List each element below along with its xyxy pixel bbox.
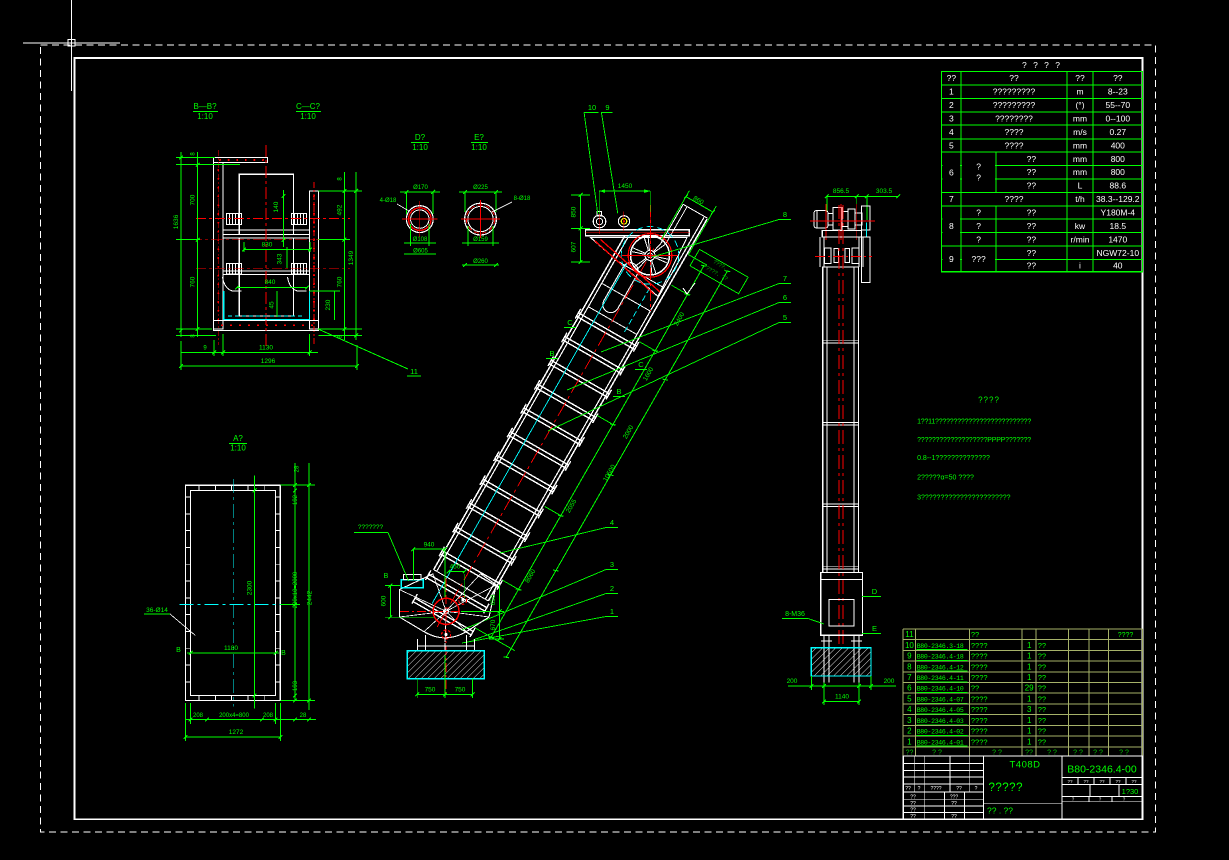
svg-text:10: 10 [905,641,914,650]
svg-text:Ø225: Ø225 [473,185,488,191]
svg-text:??: ?? [1027,261,1037,271]
svg-text:492: 492 [337,204,344,215]
svg-text:? ?: ? ? [1093,750,1103,757]
svg-text:2?????α=50 ????: 2?????α=50 ???? [917,475,974,482]
svg-text:45: 45 [269,301,276,309]
svg-text:6: 6 [949,167,954,177]
svg-text:(°): (°) [1075,100,1084,110]
svg-text:mm: mm [1073,114,1087,124]
svg-text:B: B [616,387,621,396]
svg-text:40: 40 [1113,261,1123,271]
svg-text:36-Ø14: 36-Ø14 [146,607,168,614]
svg-text:1: 1 [949,87,954,97]
svg-text:1:10: 1:10 [471,143,487,152]
svg-text:607: 607 [571,241,578,252]
svg-text:???: ??? [950,795,959,801]
svg-text:0.8--1??????????????: 0.8--1?????????????? [917,455,990,462]
svg-text:t/h: t/h [1075,194,1085,204]
svg-text:3: 3 [1027,705,1032,714]
svg-text:11: 11 [410,367,418,376]
svg-text:??: ?? [1038,705,1046,714]
svg-text:4: 4 [949,127,954,137]
svg-text:1349: 1349 [348,250,355,265]
svg-text:????: ???? [978,396,1000,405]
svg-text:850: 850 [571,206,578,217]
svg-text:??: ?? [1038,641,1046,650]
svg-text:C—C?: C—C? [296,102,321,111]
svg-text:4-Ø18: 4-Ø18 [380,198,397,204]
svg-text:38.3--129.2: 38.3--129.2 [1096,194,1140,204]
svg-text:????: ???? [1005,140,1024,150]
svg-text:?: ? [976,161,981,171]
svg-text:????????: ???????? [995,114,1033,124]
svg-text:28: 28 [295,465,301,472]
svg-text:L: L [1078,181,1083,191]
svg-text:??: ?? [1027,154,1037,164]
svg-text:???????????????????PPPP???????: ???????????????????PPPP??????? [917,437,1031,444]
svg-text:?????????: ????????? [993,87,1036,97]
svg-text:E: E [872,624,877,633]
svg-text:?????????: ????????? [993,100,1036,110]
svg-text:5: 5 [783,313,787,322]
svg-text:7: 7 [907,673,912,682]
svg-text:??: ?? [1027,221,1037,231]
svg-text:????: ???? [971,716,988,725]
svg-text:??: ?? [1038,716,1046,725]
svg-text:28: 28 [300,713,307,719]
svg-text:193: 193 [293,680,299,691]
svg-text:?????: ????? [989,782,1023,794]
svg-text:B—B?: B—B? [193,102,217,111]
svg-text:800: 800 [1111,154,1125,164]
svg-text:B80-2346.4-01: B80-2346.4-01 [917,739,964,746]
svg-text:?: ? [976,234,981,244]
svg-text:B80-2346.4-11: B80-2346.4-11 [917,675,964,682]
svg-text:D: D [872,587,878,596]
svg-text:3: 3 [610,560,614,569]
svg-text:6: 6 [783,293,787,302]
svg-text:????: ???? [1005,127,1024,137]
svg-text:?: ? [918,786,921,792]
svg-text:??: ?? [1027,167,1037,177]
svg-text:B: B [176,647,181,654]
svg-text:B: B [549,349,554,358]
svg-text:??: ?? [1009,73,1019,83]
svg-text:??: ?? [1027,207,1037,217]
svg-text:8: 8 [949,221,954,231]
svg-text:800: 800 [1111,167,1125,177]
svg-text:?: ? [976,207,981,217]
svg-text:5: 5 [949,140,954,150]
svg-text:??: ?? [971,684,979,693]
svg-text:E?: E? [474,133,484,142]
svg-text:1:10: 1:10 [412,143,428,152]
svg-text:2300: 2300 [247,580,254,595]
svg-text:1: 1 [1027,652,1032,661]
svg-text:1: 1 [1027,641,1032,650]
svg-text:1:10: 1:10 [300,112,316,121]
svg-text:1450: 1450 [618,183,633,190]
svg-text:Y180M-4: Y180M-4 [1101,207,1136,217]
svg-text:8: 8 [907,662,912,671]
svg-text:1: 1 [1027,716,1032,725]
svg-text:????: ???? [1005,194,1024,204]
svg-text:1470: 1470 [1108,234,1127,244]
svg-text:2: 2 [949,100,954,110]
svg-text:??: ?? [1115,779,1121,784]
svg-text:??: ?? [910,808,916,814]
svg-text:??: ?? [1038,652,1046,661]
svg-text:1?30: 1?30 [1122,787,1139,796]
svg-text:7: 7 [949,194,954,204]
svg-text:????: ???? [971,673,988,682]
svg-text:? ?: ? ? [992,750,1002,757]
svg-text:1130: 1130 [259,345,273,352]
svg-text:??: ?? [947,73,957,83]
svg-text:1272: 1272 [229,729,244,736]
svg-text:55--70: 55--70 [1106,100,1131,110]
svg-text:670: 670 [490,619,497,630]
svg-text:200: 200 [884,678,895,685]
svg-text:??: ?? [906,750,914,757]
svg-text:29: 29 [1025,684,1034,693]
svg-text:????: ???? [1118,632,1134,639]
svg-text:? ?: ? ? [1073,750,1083,757]
svg-text:Ø260: Ø260 [473,259,488,265]
svg-text:3???????????????????????: 3??????????????????????? [917,494,1011,501]
svg-text:C: C [567,318,573,327]
svg-text:10: 10 [588,103,596,112]
svg-text:??: ?? [1038,727,1046,736]
svg-text:8-M36: 8-M36 [785,611,805,618]
svg-text:NGW72-10: NGW72-10 [1097,248,1140,258]
svg-text:750: 750 [425,687,436,694]
svg-text:??: ?? [1075,73,1085,83]
svg-text:? ? ? ?: ? ? ? ? [1022,60,1062,70]
svg-text:mm: mm [1073,154,1087,164]
svg-text:i: i [1079,261,1081,271]
svg-text:1296: 1296 [261,358,276,365]
svg-text:200: 200 [787,678,798,685]
svg-text:??: ?? [905,786,911,792]
svg-text:????: ???? [930,786,941,792]
svg-text:230: 230 [325,299,332,310]
svg-text:B80-2346.4-07: B80-2346.4-07 [917,696,964,703]
svg-text:??: ?? [1067,779,1073,784]
svg-text:1: 1 [1027,673,1032,682]
svg-text:B80-2346.4-02: B80-2346.4-02 [917,729,964,736]
svg-text:4: 4 [610,518,614,527]
svg-text:Ø159: Ø159 [473,237,488,243]
svg-text:600: 600 [381,595,388,606]
svg-text:940: 940 [424,541,435,548]
svg-text:? ?: ? ? [1119,750,1129,757]
svg-text:??: ?? [951,814,957,820]
svg-text:????: ???? [971,727,988,736]
svg-text:mm: mm [1073,140,1087,150]
svg-text:1: 1 [907,737,912,746]
svg-text:750: 750 [455,687,466,694]
svg-text:208: 208 [263,713,274,719]
svg-text:650: 650 [490,594,497,605]
svg-text:450: 450 [450,563,461,570]
svg-text:2442: 2442 [307,590,314,605]
svg-text:1: 1 [1027,694,1032,703]
svg-text:??: ?? [910,801,916,807]
svg-text:1:10: 1:10 [197,112,213,121]
svg-text:11: 11 [905,630,914,639]
svg-text:7: 7 [783,274,787,283]
svg-text:830: 830 [262,242,273,249]
svg-text:C: C [638,360,644,369]
svg-text:??: ?? [910,795,916,801]
svg-text:18.5: 18.5 [1110,221,1127,231]
svg-text:B80-2346.3-18: B80-2346.3-18 [917,643,964,650]
svg-text:3: 3 [949,114,954,124]
svg-text:??: ?? [1038,684,1046,693]
svg-text:700: 700 [190,194,197,205]
svg-text:B80-2346.4-05: B80-2346.4-05 [917,707,964,714]
svg-text:343: 343 [277,253,284,264]
svg-text:9: 9 [605,103,609,112]
svg-text:760: 760 [190,276,197,287]
svg-text:B: B [281,650,286,657]
svg-text:?: ? [975,786,978,792]
svg-text:??: ?? [1038,737,1046,746]
svg-text:m: m [1076,87,1083,97]
svg-text:??: ?? [1038,694,1046,703]
svg-text:??: ?? [1131,779,1137,784]
svg-text:B80-2346.4-18: B80-2346.4-18 [917,654,964,661]
svg-text:??: ?? [1038,673,1046,682]
svg-text:B80-2346.4-12: B80-2346.4-12 [917,664,964,671]
svg-text:??: ?? [1038,662,1046,671]
svg-text:303.5: 303.5 [876,188,893,195]
svg-text:m/s: m/s [1073,127,1087,137]
svg-text:A?: A? [233,434,243,443]
svg-text:1: 1 [610,607,614,616]
svg-text:6: 6 [907,684,912,693]
svg-text:1180: 1180 [224,645,238,652]
svg-text:????: ???? [971,737,988,746]
svg-text:1: 1 [1027,662,1032,671]
svg-text:B80-2346.4-10: B80-2346.4-10 [917,686,964,693]
svg-text:0--100: 0--100 [1106,114,1131,124]
svg-text:?: ? [976,221,981,231]
svg-text:1: 1 [1027,727,1032,736]
svg-text:????: ???? [971,694,988,703]
svg-text:mm: mm [1073,167,1087,177]
svg-text:400: 400 [1111,140,1125,150]
svg-text:840: 840 [265,279,276,286]
svg-text:9: 9 [949,254,954,264]
svg-text:??: ?? [1113,73,1123,83]
svg-text:1??11?????????????????????????: 1??11?????????????????????????? [917,418,1031,425]
svg-text:200x10=2000: 200x10=2000 [293,571,299,608]
svg-text:B: B [384,573,389,580]
svg-text:1636: 1636 [173,214,180,229]
svg-text:3: 3 [907,716,912,725]
svg-text:140: 140 [273,201,280,212]
svg-text:?: ? [976,172,981,182]
svg-text:88.6: 88.6 [1110,181,1127,191]
svg-text:B80-2346.4-03: B80-2346.4-03 [917,718,964,725]
svg-text:????: ???? [971,641,988,650]
svg-text:1: 1 [1027,737,1032,746]
svg-text:T408D: T408D [1009,760,1040,771]
svg-text:0.27: 0.27 [1110,127,1127,137]
svg-text:856.5: 856.5 [833,188,850,195]
svg-text:??: ?? [1083,779,1089,784]
svg-text:8--23: 8--23 [1108,87,1128,97]
svg-text:Ø170: Ø170 [413,185,428,191]
svg-text:B80-2346.4-00: B80-2346.4-00 [1067,764,1137,776]
svg-text:2: 2 [907,727,912,736]
svg-text:???????: ??????? [358,524,384,531]
svg-text:1:10: 1:10 [230,444,246,453]
svg-text:???: ??? [972,254,986,264]
svg-text:??: ?? [910,814,916,820]
svg-text:208: 208 [193,713,204,719]
svg-text:760: 760 [337,276,344,287]
svg-text:1140: 1140 [835,694,849,701]
svg-text:??: ?? [956,786,962,792]
svg-text:9: 9 [907,652,912,661]
svg-text:192: 192 [293,494,299,505]
svg-text:200x4=800: 200x4=800 [219,713,250,719]
svg-text:4: 4 [907,705,912,714]
svg-text:?? . ??: ?? . ?? [987,806,1013,816]
svg-text:??: ?? [1025,750,1033,757]
svg-text:8-Ø18: 8-Ø18 [514,196,531,202]
svg-text:r/min: r/min [1071,234,1090,244]
svg-text:kw: kw [1075,221,1086,231]
svg-text:??: ?? [1099,779,1105,784]
svg-text:??: ?? [1027,181,1037,191]
svg-text:??: ?? [971,630,979,639]
svg-text:??: ?? [1027,234,1037,244]
svg-text:? ?: ? ? [1047,750,1057,757]
svg-text:8: 8 [783,210,787,219]
svg-text:Ø108: Ø108 [413,237,428,243]
svg-text:D?: D? [415,133,426,142]
svg-text:2: 2 [610,584,614,593]
svg-text:????: ???? [971,705,988,714]
svg-text:????: ???? [971,662,988,671]
svg-text:??: ?? [951,801,957,807]
svg-text:??: ?? [1027,248,1037,258]
svg-text:????: ???? [971,652,988,661]
svg-text:5: 5 [907,694,912,703]
svg-text:? ?: ? ? [932,750,942,757]
